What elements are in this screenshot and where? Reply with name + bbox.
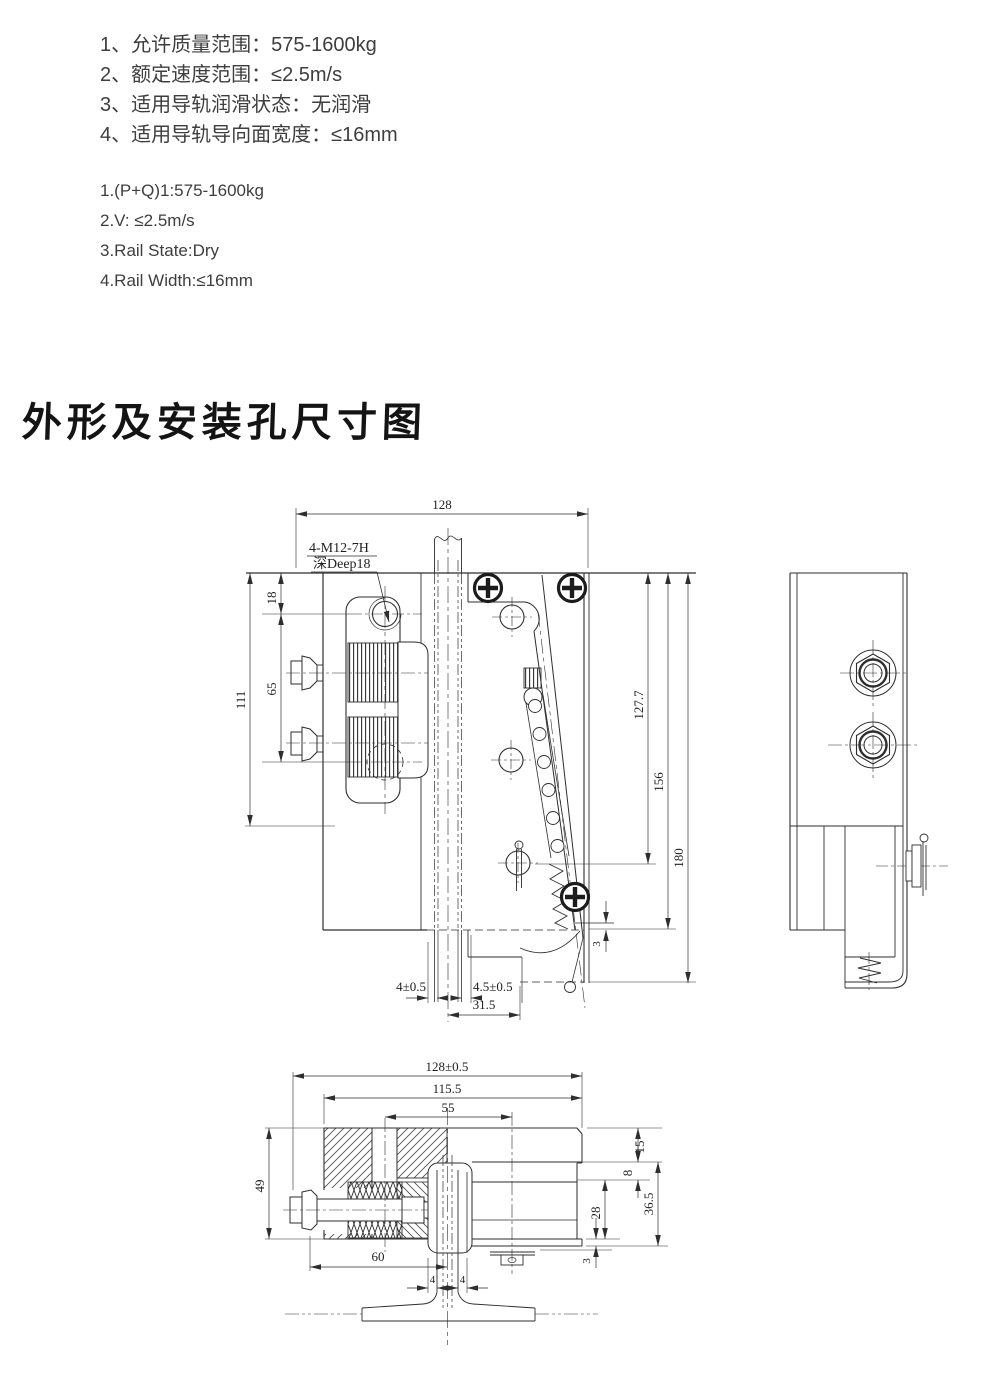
dim-label-top-hole: 18 [264,592,279,605]
phillips-screws [475,575,589,911]
catalog-page: 1、允许质量范围：575-1600kg 2、额定速度范围：≤2.5m/s 3、适… [0,0,1000,1400]
dim-label-height: 49 [252,1180,267,1193]
dim-label-step: 3 [591,941,603,947]
dim-3-front: 3 [591,901,606,952]
dim-label-gap-left: 4±0.5 [396,979,426,994]
friction-lining-lower [348,717,398,777]
wedge-lever [520,575,585,1008]
friction-lining-upper [348,643,398,702]
dim-label-pin-height: 127.7 [631,690,646,720]
dim-label-width-inner: 115.5 [433,1081,462,1096]
cotter-pin-head [515,841,523,849]
dim-label-total-height: 180 [671,848,686,868]
hole-note-line2: 深Deep18 [313,556,371,572]
dim-label-body-height: 156 [651,772,666,792]
brake-shoe [262,586,428,814]
rail-slot-block [428,1163,472,1253]
dim-label-web-right: 4 [460,1274,466,1286]
dim-label-width-total: 128±0.5 [426,1059,469,1074]
coil-spring-upper [348,1182,402,1199]
dim-label-lower: 28 [588,1207,603,1220]
dim-gaps: 4±0.5 4.5±0.5 [396,935,513,1003]
hole-note-line1: 4-M12-7H [309,541,369,556]
dim-label-bolt-length: 60 [372,1249,385,1264]
dim-label-bolt-offset: 55 [442,1100,455,1115]
dim-18-65-111: 18 65 111 [233,573,335,826]
dim-label-top: 15 [632,1141,647,1154]
dim-label-lower-total: 36.5 [641,1193,656,1216]
dim-label-offset: 31.5 [473,997,496,1012]
dim-label-plate: 3 [581,1258,593,1264]
dim-right-heights: 127.7 156 180 [535,573,696,983]
front-view: 128 4-M12-7H 深Deep18 18 65 111 [233,497,696,1022]
compression-spring [858,958,881,983]
hex-bolt [840,640,906,706]
knurled-roller [524,668,541,688]
coil-spring-lower [348,1221,402,1238]
side-view [790,573,948,990]
bottom-view: 128±0.5 115.5 55 49 [252,1059,668,1345]
lever-tip-pin [565,982,576,993]
housing-pins [491,597,538,891]
shoe-cap [398,642,428,778]
dim-label-plate-height: 111 [233,691,248,710]
dim-label-hole-spacing: 65 [264,683,279,696]
bracket-bolt [490,1228,535,1274]
dim-right-stack: 15 8 28 36.5 3 [540,1128,668,1268]
cotter-pin-side [876,834,948,896]
dim-label-web-left: 4 [430,1274,436,1286]
dim-60: 60 [310,1236,447,1271]
dim-label-width: 128 [432,497,452,512]
dim-label-gap-right: 4.5±0.5 [473,979,513,994]
dimension-drawing: 128 4-M12-7H 深Deep18 18 65 111 [0,0,1000,1400]
hex-bolt [828,712,918,778]
dim-55: 55 [385,1100,512,1117]
dim-label-step: 8 [620,1170,635,1177]
guide-rail-front [435,528,462,1022]
